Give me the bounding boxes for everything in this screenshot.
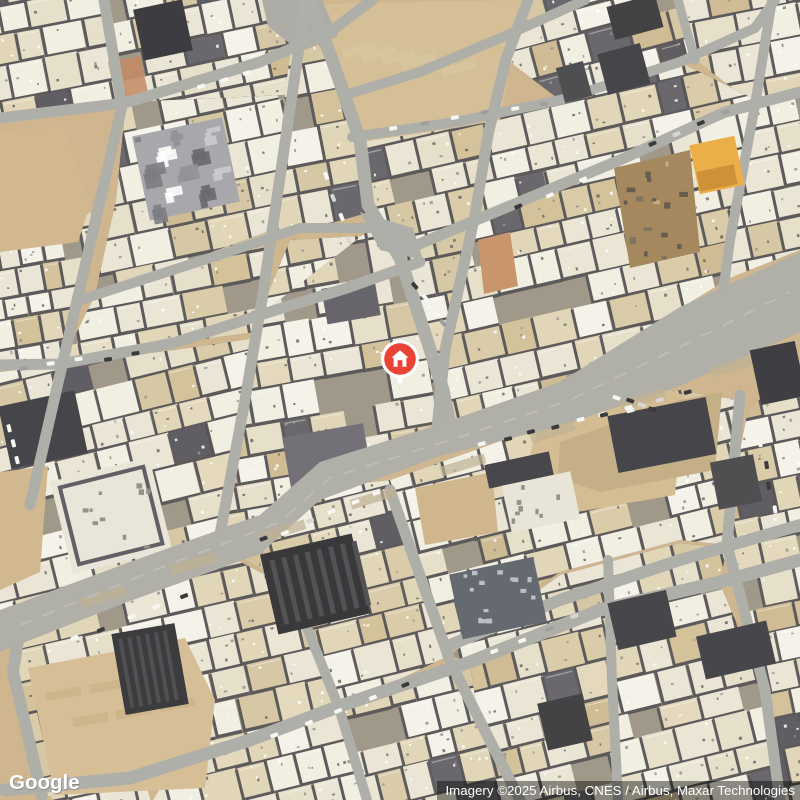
svg-text:Imagery ©2025 Airbus, CNES / A: Imagery ©2025 Airbus, CNES / Airbus, Max… — [445, 783, 795, 798]
svg-text:Google: Google — [9, 771, 80, 794]
